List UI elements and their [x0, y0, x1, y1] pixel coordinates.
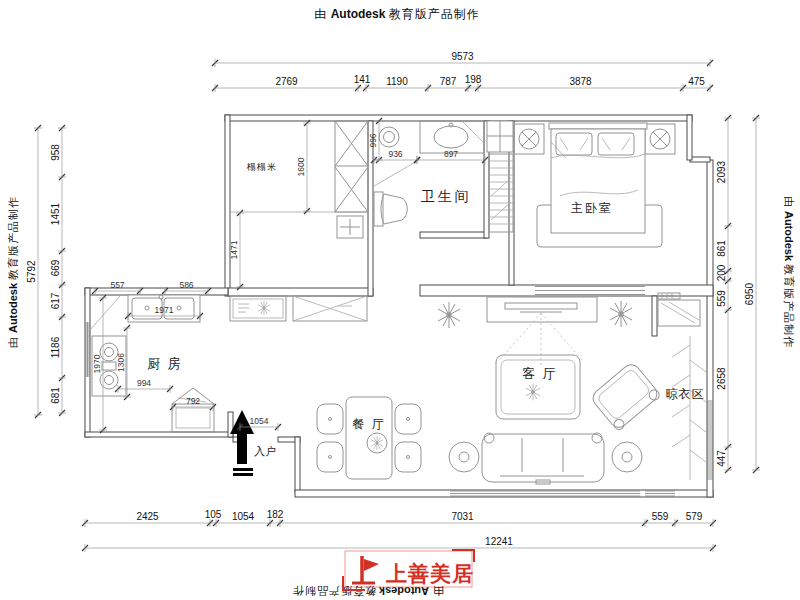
dining-room	[317, 397, 421, 479]
svg-text:198: 198	[465, 74, 482, 85]
dim-tatami-depth: 1600	[296, 120, 311, 214]
svg-text:5792: 5792	[26, 260, 37, 283]
svg-text:2425: 2425	[136, 511, 159, 522]
svg-text:996: 996	[368, 133, 378, 147]
svg-text:557: 557	[110, 280, 124, 290]
flue-chamfer-line	[90, 296, 120, 330]
hall-cabinets	[230, 296, 367, 321]
svg-text:447: 447	[716, 450, 727, 467]
room-label-entry: 入户	[254, 445, 276, 457]
svg-text:1451: 1451	[50, 202, 61, 225]
svg-text:105: 105	[205, 509, 222, 520]
svg-text:994: 994	[137, 378, 151, 388]
svg-text:1306: 1306	[116, 353, 126, 372]
svg-text:579: 579	[686, 511, 703, 522]
room-label-master: 主卧室	[571, 201, 613, 215]
nightstand-fan-icon	[645, 124, 675, 154]
living-room	[438, 297, 661, 484]
svg-text:475: 475	[688, 76, 705, 87]
dining-chair-symbol	[395, 442, 421, 472]
svg-text:1471: 1471	[229, 240, 239, 259]
room-label-dining: 餐 厅	[352, 417, 385, 431]
room-label-kitchen: 厨 房	[147, 356, 183, 371]
shaft-symbol	[487, 121, 513, 152]
room-label-tatami: 榻榻米	[246, 162, 277, 172]
svg-text:559: 559	[652, 511, 669, 522]
svg-text:1054: 1054	[232, 511, 255, 522]
dining-chair-symbol	[317, 404, 343, 434]
svg-text:1054: 1054	[250, 416, 269, 426]
svg-text:1186: 1186	[50, 336, 61, 358]
svg-text:792: 792	[186, 396, 200, 406]
dim-shower: 936	[371, 149, 420, 164]
dim-hall: 1471	[229, 210, 244, 290]
svg-text:669: 669	[50, 259, 61, 276]
svg-text:1600: 1600	[296, 157, 306, 176]
svg-text:617: 617	[50, 292, 61, 309]
shower-symbol	[379, 127, 399, 147]
room-label-drying: 晾衣区	[666, 387, 705, 401]
wardrobe-symbol	[335, 121, 368, 212]
svg-text:897: 897	[444, 149, 458, 159]
floor-plan-canvas: 榻榻米 卫生间 主卧室 厨 房 客 厅 餐 厅 晾衣区 入户 9573 2769…	[0, 0, 800, 600]
corner-cabinet-symbol	[172, 388, 214, 432]
nightstand-fan-icon	[514, 124, 544, 154]
svg-text:182: 182	[267, 509, 284, 520]
svg-text:586: 586	[179, 280, 193, 290]
svg-text:958: 958	[50, 144, 61, 161]
svg-text:1970: 1970	[92, 354, 102, 373]
brand-logo-text: 上善美居	[385, 562, 474, 585]
dim-bottom-total: 12241	[82, 536, 716, 552]
side-table-round	[612, 442, 642, 472]
tv-cabinet-symbol	[487, 297, 597, 322]
coffee-table-symbol	[496, 355, 580, 419]
svg-text:2769: 2769	[275, 76, 298, 87]
svg-text:2658: 2658	[716, 367, 727, 390]
svg-text:559: 559	[716, 290, 727, 307]
floor-plan-sheet: 由 Autodesk 教育版产品制作 由 Autodesk 教育版产品制作 由 …	[0, 0, 800, 600]
dining-chair-symbol	[317, 442, 343, 472]
side-table-symbol	[337, 216, 363, 238]
dim-left-total: 5792	[26, 125, 42, 418]
svg-text:200: 200	[716, 264, 727, 281]
svg-text:787: 787	[440, 76, 457, 87]
master-bedroom	[514, 123, 675, 247]
svg-text:861: 861	[716, 240, 727, 257]
dim-top-row: 276914111907871983878475	[212, 74, 713, 92]
svg-text:12241: 12241	[485, 536, 513, 547]
svg-text:936: 936	[388, 149, 402, 159]
dim-top-total: 9573	[212, 51, 713, 67]
tatami-room	[230, 121, 368, 238]
svg-text:681: 681	[50, 387, 61, 404]
dim-basin: 897	[414, 149, 488, 164]
svg-text:141: 141	[354, 74, 371, 85]
svg-text:2093: 2093	[716, 160, 727, 183]
dim-bottom-row: 242510510541827031559579	[82, 509, 716, 527]
washing-machine-symbol	[658, 293, 700, 326]
accent-chair-symbol	[589, 361, 661, 431]
side-table-round	[449, 442, 479, 472]
toilet-symbol	[374, 192, 407, 226]
dim-right-total: 6950	[744, 115, 760, 473]
svg-text:1190: 1190	[386, 76, 408, 87]
svg-text:6950: 6950	[744, 282, 755, 305]
brand-logo: 上善美居	[343, 550, 474, 590]
svg-text:3878: 3878	[569, 76, 592, 87]
shoe-cabinet-symbol	[293, 296, 367, 321]
sofa-symbol	[482, 433, 604, 484]
brand-logo-mark	[352, 556, 379, 583]
room-label-bath: 卫生间	[421, 188, 472, 204]
clothes-rack-symbol	[672, 336, 706, 480]
decor-cabinet-symbol	[230, 296, 286, 321]
svg-text:9573: 9573	[451, 51, 474, 62]
dim-left-col: 95814516696171186681	[50, 125, 66, 416]
room-label-living: 客 厅	[522, 366, 558, 381]
bed-symbol	[549, 123, 647, 233]
dim-right-col: 20938612005592658447	[716, 115, 732, 473]
svg-text:7031: 7031	[451, 511, 474, 522]
dining-chair-symbol	[395, 404, 421, 434]
svg-text:1971: 1971	[155, 305, 174, 315]
shower-door-line	[374, 160, 419, 186]
